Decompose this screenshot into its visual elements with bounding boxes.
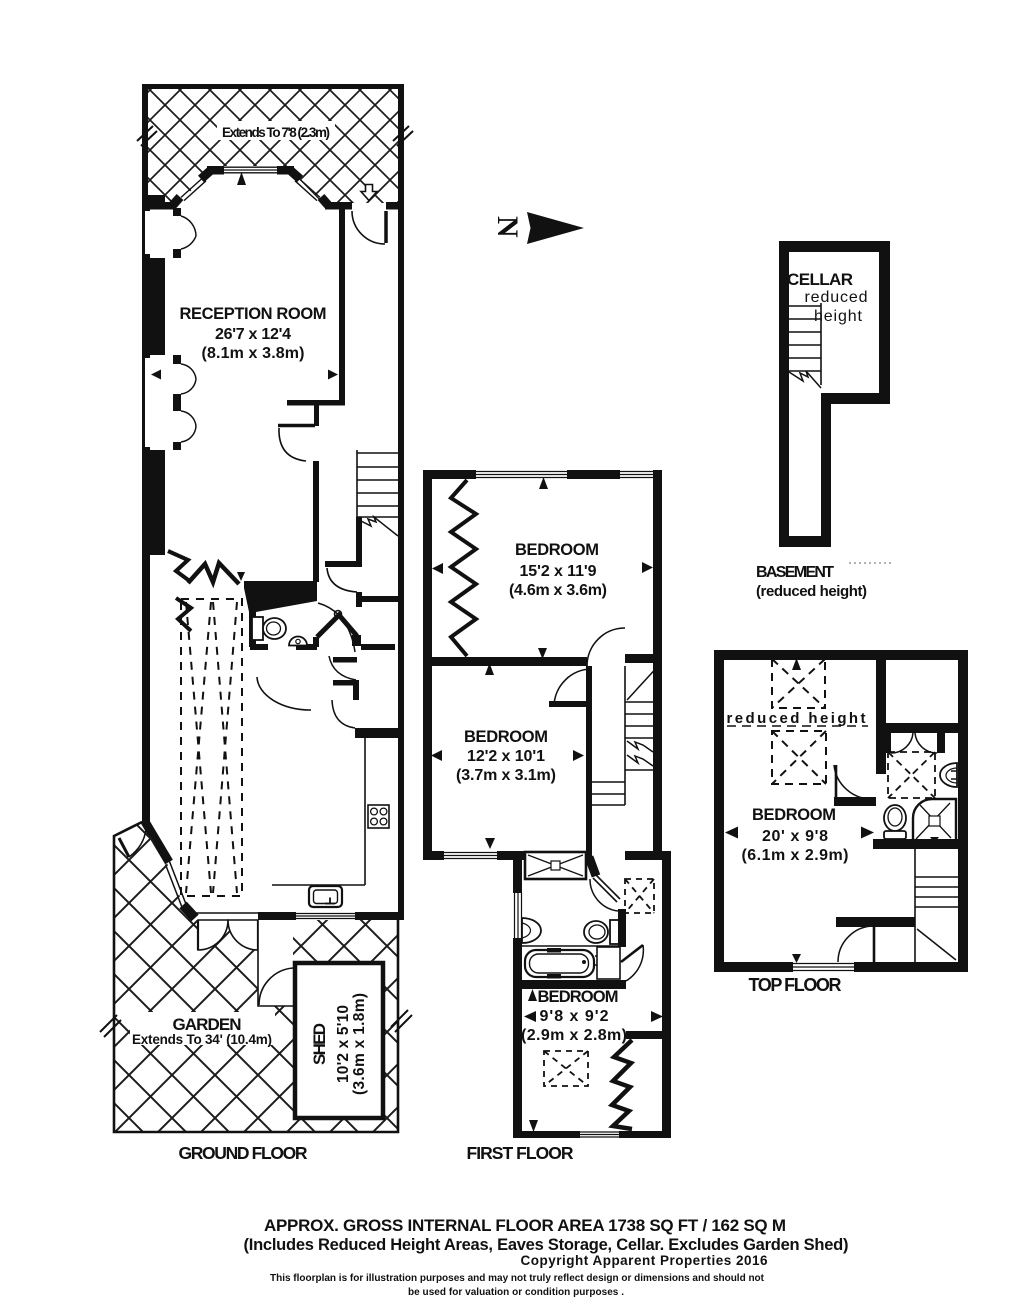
svg-text:Extends To 34' (10.4m): Extends To 34' (10.4m) xyxy=(132,1032,272,1047)
svg-text:(3.7m x 3.1m): (3.7m x 3.1m) xyxy=(456,767,556,784)
svg-text:(6.1m x 2.9m): (6.1m x 2.9m) xyxy=(742,847,849,864)
svg-text:BEDROOM: BEDROOM xyxy=(515,541,599,559)
svg-text:APPROX. GROSS INTERNAL FLOOR A: APPROX. GROSS INTERNAL FLOOR AREA 1738 S… xyxy=(264,1216,786,1235)
svg-text:TOP FLOOR: TOP FLOOR xyxy=(749,975,842,995)
svg-text:This floorplan is for illustra: This floorplan is for illustration purpo… xyxy=(270,1273,765,1284)
svg-text:(8.1m x 3.8m): (8.1m x 3.8m) xyxy=(202,345,305,362)
svg-text:GROUND FLOOR: GROUND FLOOR xyxy=(179,1143,308,1163)
svg-text:BEDROOM: BEDROOM xyxy=(464,728,548,746)
svg-text:(4.6m x 3.6m): (4.6m x 3.6m) xyxy=(509,582,607,599)
svg-text:(2.9m x 2.8m): (2.9m x 2.8m) xyxy=(521,1027,627,1044)
svg-text:RECEPTION ROOM: RECEPTION ROOM xyxy=(180,305,327,323)
svg-text:15'2 x 11'9: 15'2 x 11'9 xyxy=(520,563,597,580)
svg-text:12'2 x 10'1: 12'2 x 10'1 xyxy=(467,748,545,765)
svg-text:(reduced height): (reduced height) xyxy=(756,583,867,600)
svg-text:SHED: SHED xyxy=(310,1023,329,1065)
svg-text:(3.6m x 1.8m): (3.6m x 1.8m) xyxy=(351,993,368,1095)
svg-text:26'7 x 12'4: 26'7 x 12'4 xyxy=(215,326,291,343)
svg-text:(Includes Reduced Height Areas: (Includes Reduced Height Areas, Eaves St… xyxy=(244,1236,849,1254)
svg-text:CELLAR: CELLAR xyxy=(787,270,853,289)
svg-text:N: N xyxy=(491,216,524,238)
svg-text:be used for valuation or condi: be used for valuation or condition purpo… xyxy=(408,1287,624,1298)
svg-text:Copyright Apparent Properties: Copyright Apparent Properties 2016 xyxy=(521,1253,768,1268)
svg-text:reduced height: reduced height xyxy=(727,710,868,727)
svg-text:20' x 9'8: 20' x 9'8 xyxy=(762,828,828,845)
svg-text:reduced: reduced xyxy=(805,289,868,306)
svg-text:9'8 x 9'2: 9'8 x 9'2 xyxy=(540,1008,609,1025)
svg-text:BEDROOM: BEDROOM xyxy=(538,988,619,1006)
svg-text:height: height xyxy=(814,308,863,325)
svg-text:Extends To 7'8 (2.3m): Extends To 7'8 (2.3m) xyxy=(222,125,330,140)
svg-text:BASEMENT: BASEMENT xyxy=(756,564,834,581)
svg-text:FIRST FLOOR: FIRST FLOOR xyxy=(467,1143,574,1163)
svg-text:BEDROOM: BEDROOM xyxy=(752,806,836,824)
svg-text:10'2 x 5'10: 10'2 x 5'10 xyxy=(335,1005,352,1083)
